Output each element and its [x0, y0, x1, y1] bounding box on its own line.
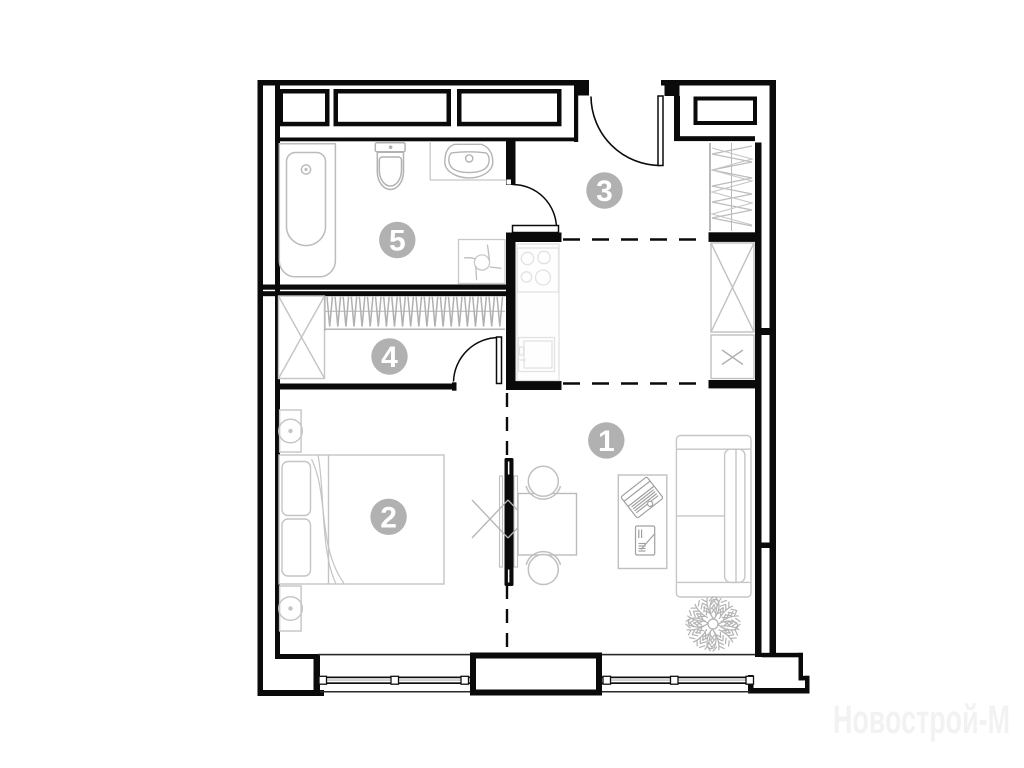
svg-text:1: 1 [598, 425, 615, 458]
svg-text:Новострой-М: Новострой-М [833, 698, 1010, 742]
svg-text:2: 2 [380, 501, 397, 534]
svg-text:3: 3 [596, 175, 613, 208]
svg-text:4: 4 [381, 341, 398, 374]
svg-text:5: 5 [389, 225, 406, 258]
